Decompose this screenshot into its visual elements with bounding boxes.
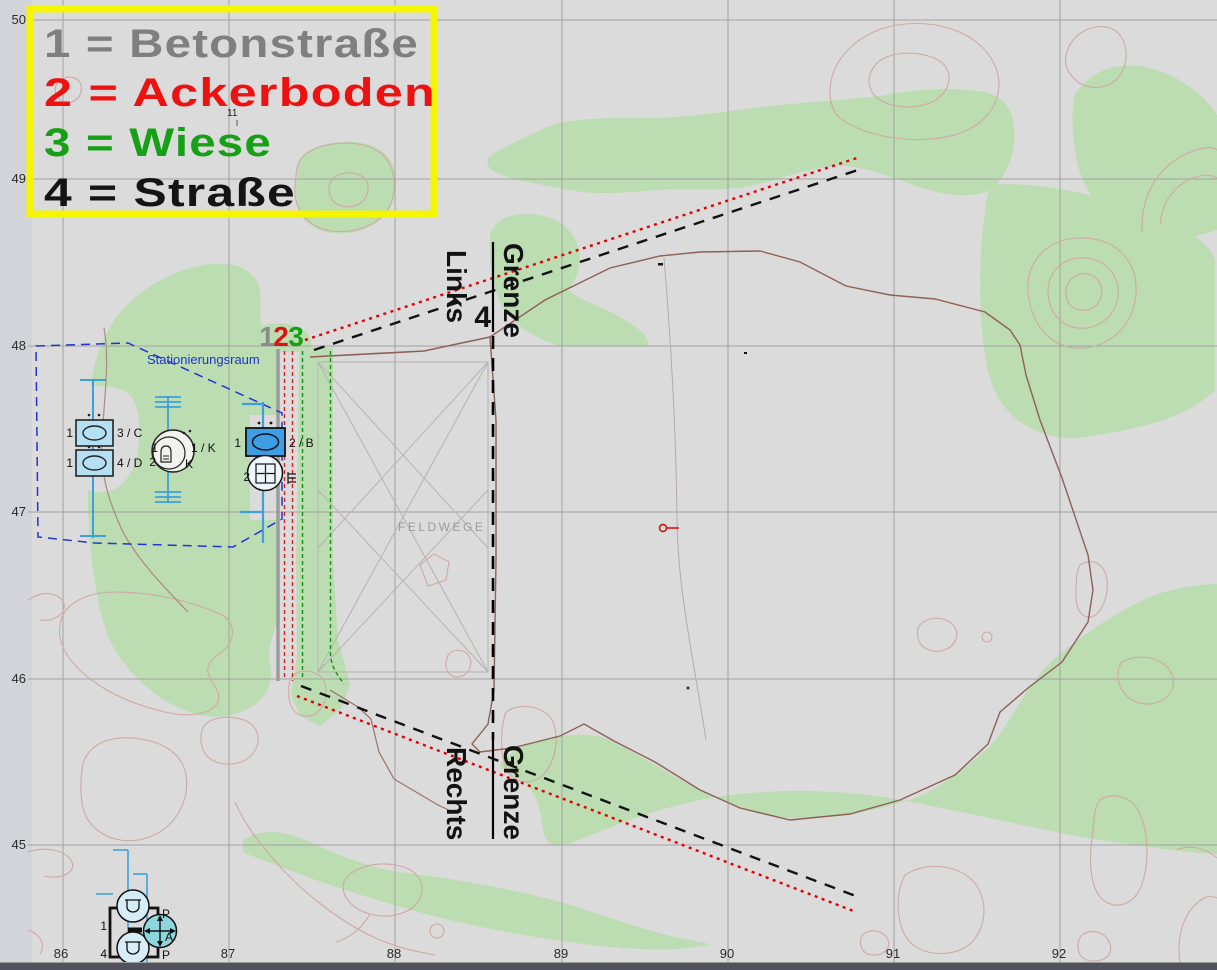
unit-designation: 2 / B — [289, 436, 314, 450]
x-axis-label: 89 — [554, 946, 568, 961]
topographic-map-canvas[interactable]: FELDWEGE 1 2 3 Links Grenze 4 Rechts Gre… — [0, 0, 1217, 970]
unit-designation: A — [165, 930, 173, 944]
label-links: Links — [441, 250, 472, 323]
y-axis-label: 49 — [12, 171, 26, 186]
support-unit-icon[interactable] — [248, 456, 283, 491]
unit-designation: 3 / C — [117, 426, 143, 440]
route-marker-3: 3 — [288, 321, 304, 352]
bridging-unit-icon[interactable] — [117, 890, 149, 922]
unit-designation: 4 / D — [117, 456, 143, 470]
unit-designation: 1 / K — [191, 441, 216, 455]
window-edge-strip — [0, 963, 1217, 970]
y-axis-label: 50 — [12, 12, 26, 27]
legend-item-strasse: 4 = Straße — [44, 171, 296, 215]
unit-number: 2 — [243, 470, 250, 484]
unit-number: 4 — [100, 947, 107, 961]
x-axis-label: 92 — [1052, 946, 1066, 961]
armor-unit-icon[interactable] — [76, 446, 113, 476]
label-route-4: 4 — [474, 301, 491, 334]
x-axis-label: 91 — [886, 946, 900, 961]
legend-item-wiese: 3 = Wiese — [44, 121, 272, 165]
x-axis-label: 88 — [387, 946, 401, 961]
map-window: FELDWEGE 1 2 3 Links Grenze 4 Rechts Gre… — [0, 0, 1217, 970]
unit-number: 1 — [100, 919, 107, 933]
label-rechts: Rechts — [441, 747, 472, 840]
legend-item-ackerboden: 2 = Ackerboden — [44, 71, 436, 115]
unit-number: 1 — [66, 426, 73, 440]
x-axis-label: 86 — [54, 946, 68, 961]
route-number-markers: 1 2 3 — [259, 321, 304, 352]
flag-icon — [288, 472, 296, 484]
unit-number: 1 — [234, 436, 241, 450]
staging-area-label: Stationierungsraum — [147, 352, 260, 367]
y-axis-label: 46 — [12, 671, 26, 686]
x-axis-label: 90 — [720, 946, 734, 961]
unit-designation: P — [162, 907, 170, 921]
route-marker-2: 2 — [273, 321, 289, 352]
unit-designation: K — [185, 457, 193, 471]
y-axis-label: 47 — [12, 504, 26, 519]
field-paths-label: FELDWEGE — [398, 520, 485, 534]
legend-item-betonstrasse: 1 = Betonstraße — [44, 22, 419, 66]
unit-number: 1 — [151, 441, 158, 455]
x-axis-label: 87 — [221, 946, 235, 961]
label-grenze-top: Grenze — [498, 243, 529, 338]
label-grenze-bottom: Grenze — [498, 745, 529, 840]
y-axis-label: 48 — [12, 338, 26, 353]
y-axis-label: 45 — [12, 837, 26, 852]
unit-number: 1 — [66, 456, 73, 470]
unit-number: 2 — [149, 455, 156, 469]
unit-designation: P — [162, 948, 170, 962]
